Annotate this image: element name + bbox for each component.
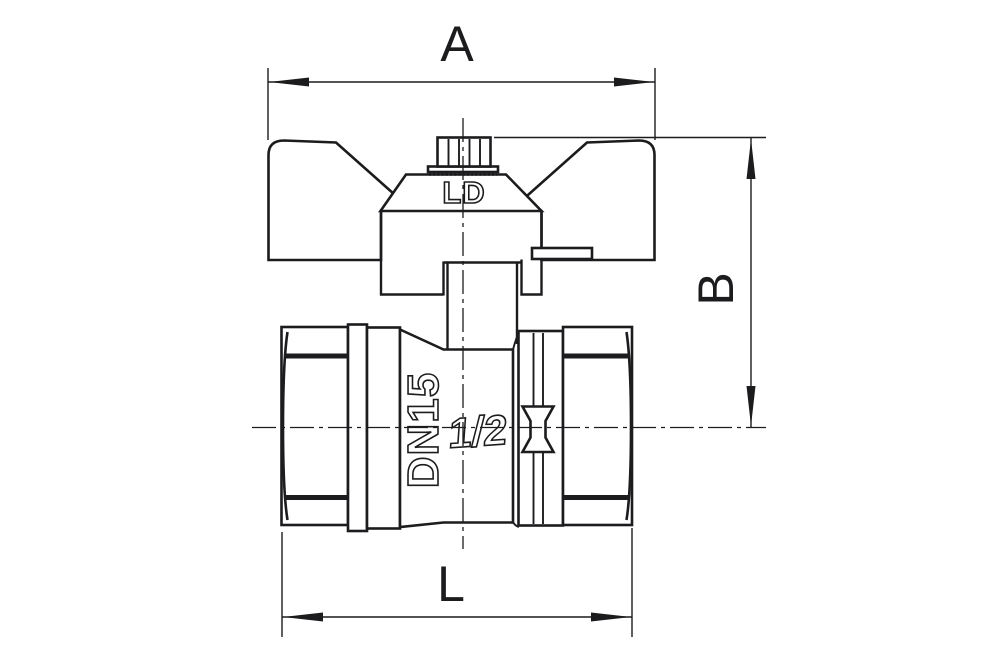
dim-a-label: A [440,16,474,72]
drawing-canvas: A B L [0,0,1000,667]
dim-a-arrow-right [614,78,654,87]
nominal-bore-marking: DN15 [399,372,448,489]
dimension-a: A [268,16,655,140]
butterfly-handle [269,138,655,296]
handle-left-wing [269,141,400,261]
hub-right-leg [522,260,542,295]
dim-b-label: B [688,272,744,305]
valve-neck [448,263,518,349]
dimension-l: L [282,528,632,637]
dim-a-arrow-left [269,78,309,87]
cast-markings: LD DN15 1/2 [399,175,509,488]
brand-logo-marking: LD [442,175,485,210]
handle-right-wing [524,141,655,261]
valve-technical-drawing: A B L [0,0,1000,667]
stem-threads [438,138,491,167]
size-marking: 1/2 [447,406,509,457]
dim-l-arrow-right [591,613,631,622]
handle-stop-tab [532,248,592,259]
dim-b-arrow-bottom [747,386,756,426]
dim-l-arrow-left [283,613,323,622]
dim-b-arrow-top [747,139,756,179]
dim-l-label: L [437,556,465,612]
